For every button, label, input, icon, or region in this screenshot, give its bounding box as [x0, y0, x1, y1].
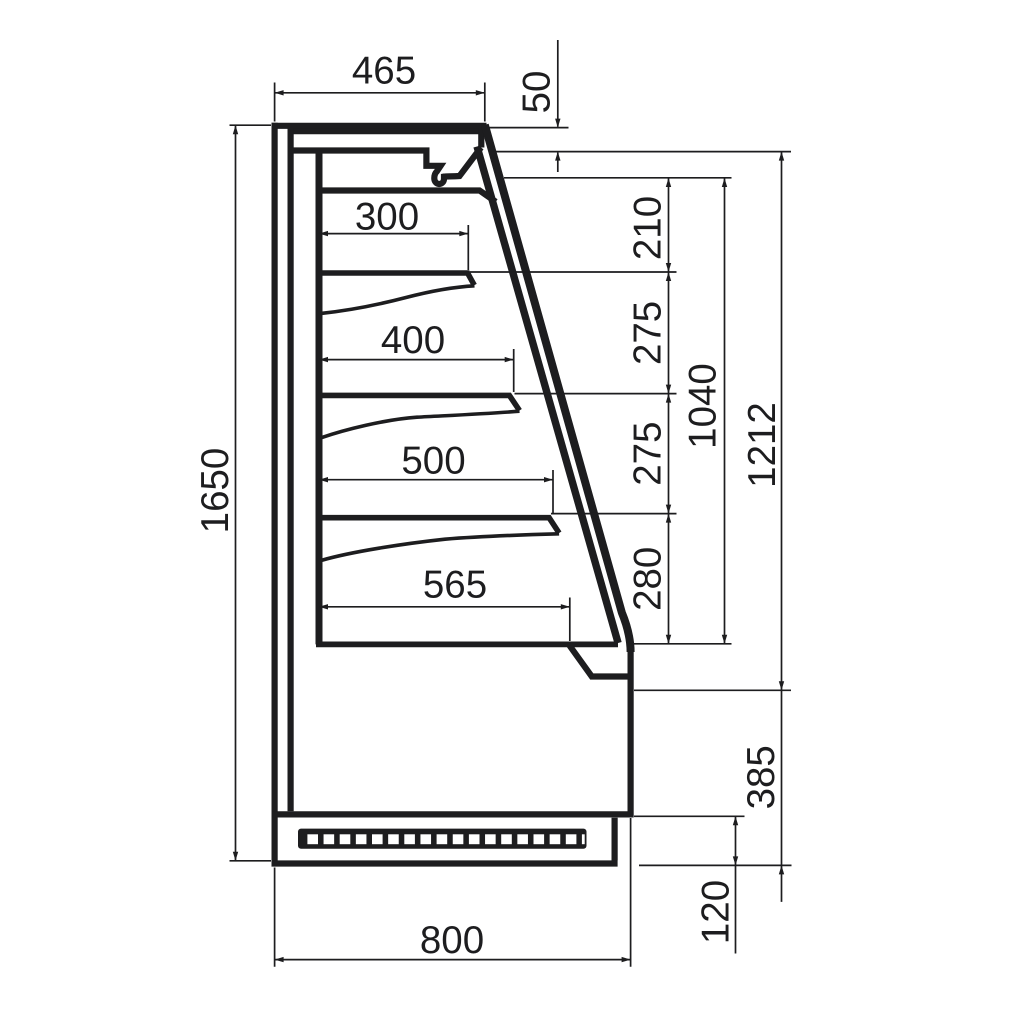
svg-text:1650: 1650: [194, 448, 237, 534]
svg-text:1212: 1212: [741, 402, 784, 488]
svg-text:465: 465: [352, 50, 416, 93]
svg-text:400: 400: [381, 319, 445, 362]
svg-text:275: 275: [627, 421, 670, 485]
svg-text:210: 210: [627, 196, 670, 260]
svg-text:50: 50: [516, 71, 559, 114]
svg-text:280: 280: [627, 547, 670, 611]
svg-text:800: 800: [420, 919, 484, 962]
svg-text:275: 275: [627, 301, 670, 365]
svg-text:300: 300: [355, 196, 419, 239]
svg-text:120: 120: [695, 880, 738, 944]
svg-text:565: 565: [423, 564, 487, 607]
svg-text:1040: 1040: [682, 363, 725, 449]
svg-text:385: 385: [740, 745, 783, 809]
svg-text:500: 500: [401, 440, 465, 483]
